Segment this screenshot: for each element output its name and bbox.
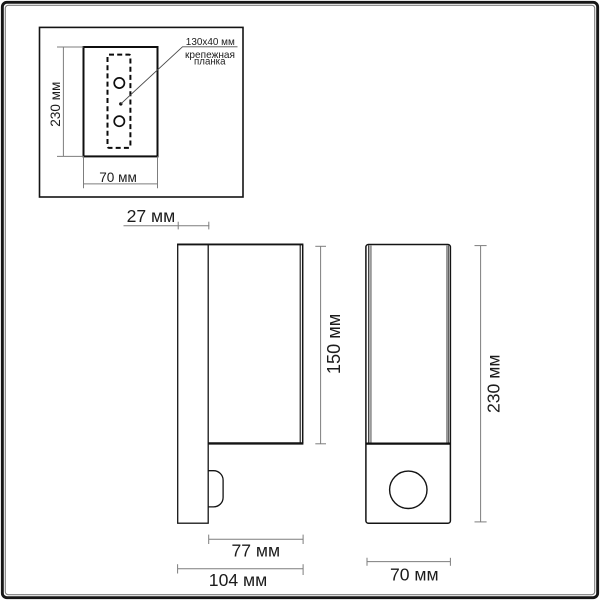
svg-text:150 мм: 150 мм — [324, 314, 344, 374]
svg-text:планка: планка — [194, 56, 226, 67]
svg-text:70 мм: 70 мм — [99, 170, 137, 185]
svg-text:77 мм: 77 мм — [231, 540, 280, 560]
svg-text:27 мм: 27 мм — [127, 206, 176, 226]
svg-text:230 мм: 230 мм — [48, 82, 63, 127]
svg-text:70 мм: 70 мм — [390, 564, 439, 584]
svg-text:130x40 мм: 130x40 мм — [186, 37, 235, 48]
svg-text:230 мм: 230 мм — [483, 355, 503, 413]
svg-text:104 мм: 104 мм — [209, 570, 267, 590]
